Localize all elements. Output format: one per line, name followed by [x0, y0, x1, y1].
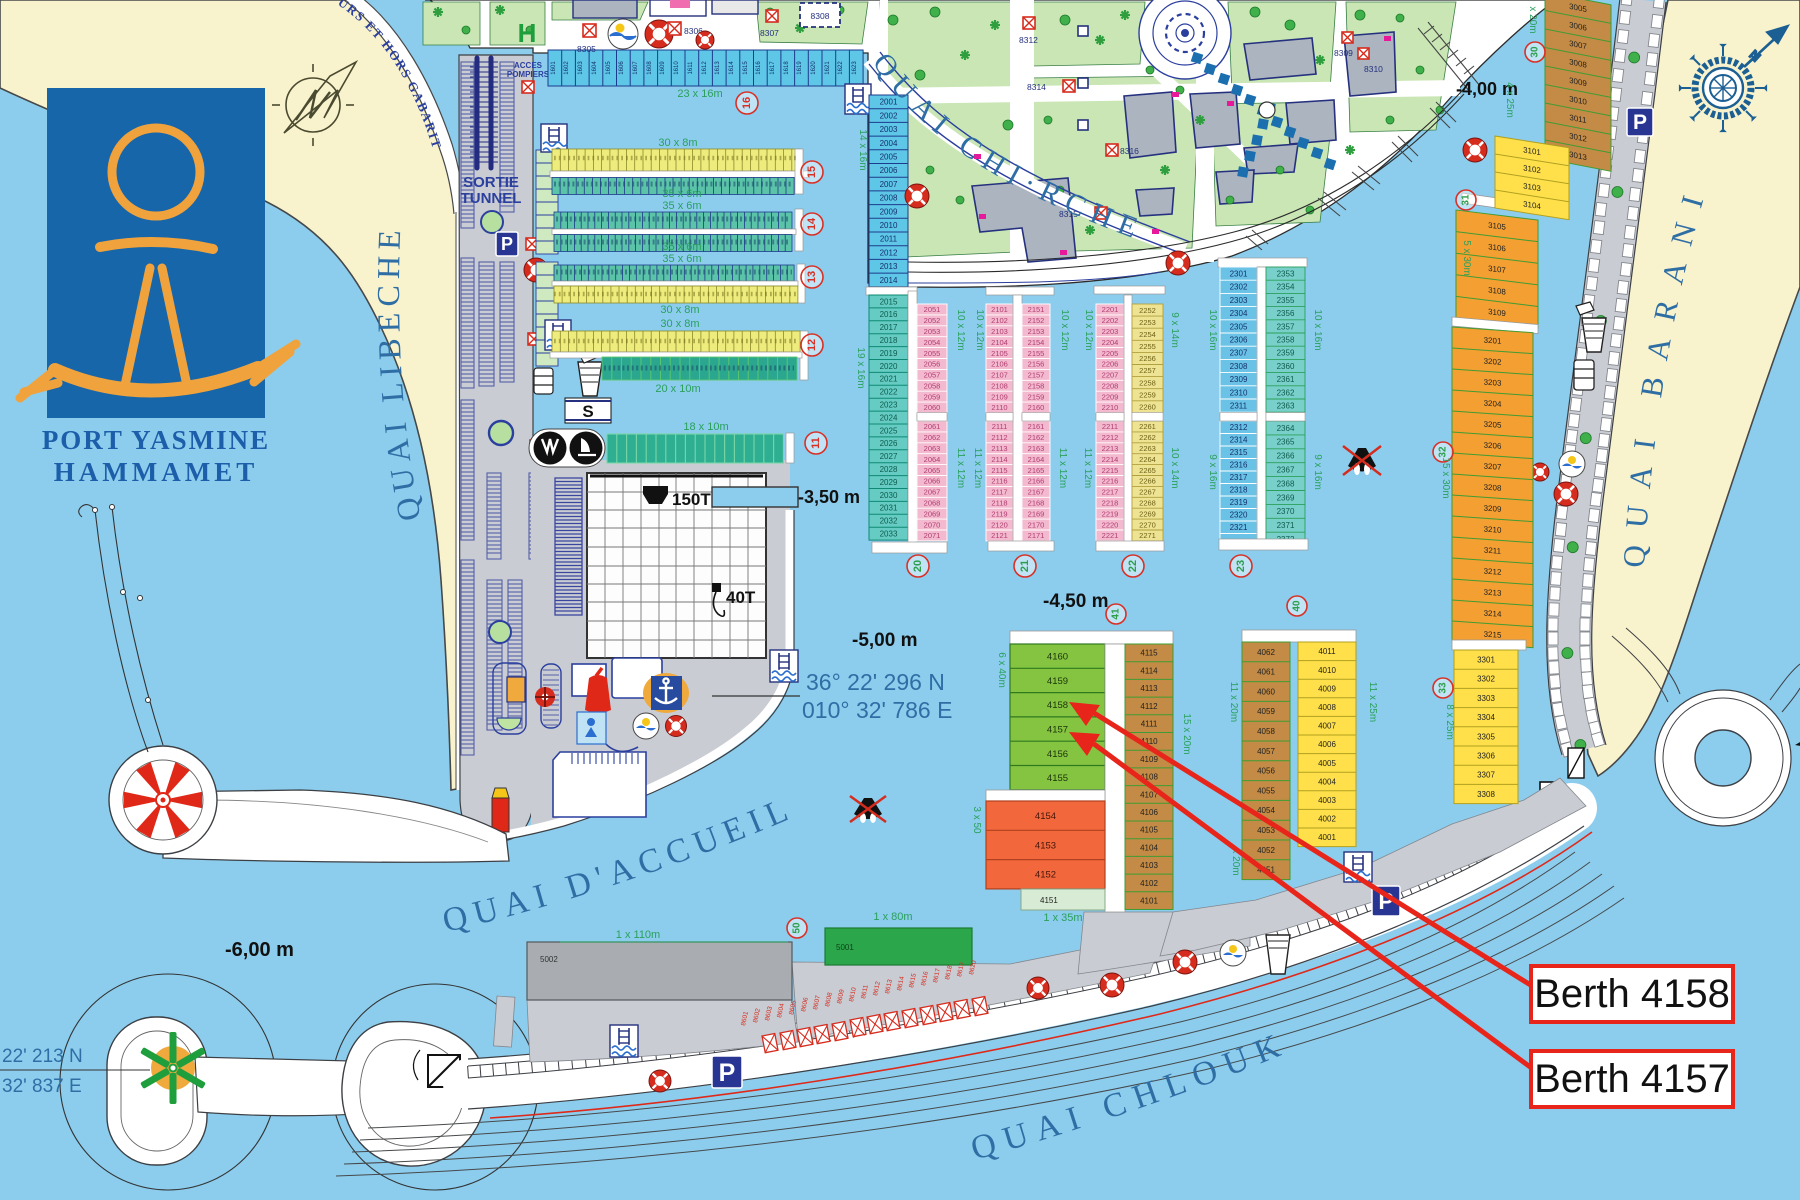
svg-text:2101: 2101: [991, 305, 1008, 314]
svg-text:2218: 2218: [1102, 498, 1119, 507]
svg-text:2312: 2312: [1230, 423, 1248, 432]
svg-text:4113: 4113: [1140, 684, 1158, 693]
svg-text:2370: 2370: [1277, 507, 1295, 516]
svg-text:1613: 1613: [715, 61, 721, 75]
svg-text:2163: 2163: [1028, 444, 1045, 453]
svg-text:4056: 4056: [1257, 767, 1275, 776]
svg-text:2016: 2016: [880, 310, 898, 319]
svg-text:2011: 2011: [880, 235, 898, 244]
svg-text:2159: 2159: [1028, 392, 1045, 401]
svg-text:10 x 12m: 10 x 12m: [1083, 309, 1094, 350]
svg-text:2362: 2362: [1277, 388, 1295, 397]
svg-text:4103: 4103: [1140, 861, 1158, 870]
svg-text:2057: 2057: [924, 371, 941, 380]
svg-text:010° 32' 786 E: 010° 32' 786 E: [802, 697, 952, 723]
svg-text:2158: 2158: [1028, 381, 1045, 390]
svg-text:2208: 2208: [1102, 381, 1119, 390]
svg-text:4157: 4157: [1047, 725, 1068, 736]
svg-text:16: 16: [741, 97, 753, 109]
svg-text:3306: 3306: [1477, 752, 1495, 761]
svg-text:2269: 2269: [1139, 509, 1156, 518]
svg-text:3303: 3303: [1477, 694, 1495, 703]
svg-text:8309: 8309: [1334, 48, 1353, 58]
svg-text:33: 33: [1438, 682, 1449, 694]
svg-text:14: 14: [806, 217, 818, 230]
svg-text:4059: 4059: [1257, 707, 1275, 716]
svg-text:3304: 3304: [1477, 713, 1495, 722]
svg-text:4007: 4007: [1318, 722, 1336, 731]
svg-text:2271: 2271: [1139, 531, 1156, 540]
svg-text:4158: 4158: [1047, 700, 1068, 711]
svg-text:4057: 4057: [1257, 747, 1275, 756]
svg-text:23: 23: [1235, 560, 1247, 572]
svg-text:2360: 2360: [1277, 362, 1295, 371]
svg-text:2015: 2015: [880, 297, 898, 306]
svg-text:2211: 2211: [1102, 422, 1118, 431]
svg-text:15 x 30m: 15 x 30m: [1440, 457, 1451, 498]
svg-text:2110: 2110: [991, 403, 1007, 412]
svg-text:2053: 2053: [924, 327, 941, 336]
svg-text:3210: 3210: [1484, 525, 1502, 535]
svg-text:3302: 3302: [1477, 675, 1495, 684]
svg-text:2307: 2307: [1230, 349, 1248, 358]
svg-text:5001: 5001: [836, 943, 854, 952]
svg-text:2355: 2355: [1277, 296, 1295, 305]
svg-text:2022: 2022: [880, 388, 898, 397]
svg-text:1614: 1614: [729, 61, 735, 75]
svg-text:2154: 2154: [1028, 338, 1045, 347]
svg-text:2007: 2007: [880, 180, 898, 189]
svg-text:150T: 150T: [672, 490, 711, 509]
svg-text:40: 40: [1292, 600, 1303, 612]
svg-text:2014: 2014: [880, 276, 898, 285]
svg-text:2104: 2104: [991, 338, 1008, 347]
svg-text:2061: 2061: [924, 422, 941, 431]
svg-text:3305: 3305: [1477, 732, 1495, 741]
svg-text:2165: 2165: [1028, 466, 1045, 475]
svg-text:1611: 1611: [688, 61, 694, 75]
svg-text:2261: 2261: [1139, 422, 1156, 431]
svg-text:3211: 3211: [1484, 546, 1502, 556]
svg-text:20: 20: [912, 560, 924, 572]
svg-text:2203: 2203: [1102, 327, 1119, 336]
svg-text:1616: 1616: [756, 61, 762, 75]
svg-text:6 x 40m: 6 x 40m: [996, 652, 1007, 688]
svg-text:4052: 4052: [1257, 846, 1275, 855]
svg-text:2262: 2262: [1139, 433, 1156, 442]
svg-text:2215: 2215: [1102, 466, 1119, 475]
svg-text:1604: 1604: [592, 61, 598, 75]
svg-text:35 x 6m: 35 x 6m: [662, 200, 701, 212]
svg-text:2157: 2157: [1028, 371, 1045, 380]
svg-text:1615: 1615: [743, 61, 749, 75]
svg-text:4055: 4055: [1257, 786, 1275, 795]
svg-text:35 x 6m: 35 x 6m: [662, 188, 701, 200]
svg-text:3209: 3209: [1484, 504, 1502, 514]
svg-text:2155: 2155: [1028, 349, 1045, 358]
svg-text:2169: 2169: [1028, 509, 1045, 518]
svg-text:3307: 3307: [1477, 771, 1495, 780]
svg-text:P: P: [1633, 111, 1647, 134]
svg-text:2216: 2216: [1102, 477, 1119, 486]
svg-text:4058: 4058: [1257, 727, 1275, 736]
svg-text:TUNNEL: TUNNEL: [461, 190, 522, 207]
svg-text:2270: 2270: [1139, 520, 1156, 529]
svg-text:2356: 2356: [1277, 309, 1295, 318]
svg-text:4156: 4156: [1047, 749, 1068, 760]
svg-text:2067: 2067: [924, 488, 941, 497]
svg-text:4159: 4159: [1047, 676, 1068, 687]
svg-text:2302: 2302: [1230, 283, 1248, 292]
svg-text:1609: 1609: [660, 61, 666, 75]
svg-text:2221: 2221: [1102, 531, 1119, 540]
svg-text:1622: 1622: [838, 61, 844, 75]
svg-text:2058: 2058: [924, 381, 941, 390]
svg-text:2357: 2357: [1277, 322, 1295, 331]
svg-text:2170: 2170: [1028, 520, 1045, 529]
svg-text:4061: 4061: [1257, 668, 1275, 677]
svg-text:23 x 16m: 23 x 16m: [677, 88, 722, 100]
svg-text:2168: 2168: [1028, 498, 1045, 507]
svg-text:P: P: [719, 1059, 736, 1087]
svg-text:15: 15: [806, 166, 818, 178]
svg-text:2032: 2032: [880, 517, 898, 526]
svg-text:8308: 8308: [811, 11, 830, 21]
svg-text:2255: 2255: [1139, 342, 1156, 351]
svg-text:2009: 2009: [880, 207, 898, 216]
svg-text:8305: 8305: [577, 44, 596, 54]
svg-text:2306: 2306: [1230, 336, 1248, 345]
svg-text:2156: 2156: [1028, 360, 1045, 369]
svg-text:2353: 2353: [1277, 270, 1295, 279]
svg-text:4104: 4104: [1140, 843, 1158, 852]
svg-text:2260: 2260: [1139, 403, 1156, 412]
svg-text:2103: 2103: [991, 327, 1008, 336]
svg-text:2162: 2162: [1028, 433, 1045, 442]
svg-text:2060: 2060: [924, 403, 941, 412]
svg-text:8312: 8312: [1019, 35, 1038, 45]
svg-text:4053: 4053: [1257, 826, 1275, 835]
svg-text:21: 21: [1019, 560, 1031, 572]
svg-text:8310: 8310: [1364, 64, 1383, 74]
svg-text:Berth 4158: Berth 4158: [1534, 972, 1730, 1016]
svg-text:SORTIE: SORTIE: [463, 174, 519, 191]
svg-text:2202: 2202: [1102, 316, 1119, 325]
svg-text:2315: 2315: [1230, 448, 1248, 457]
svg-text:4154: 4154: [1035, 811, 1056, 822]
svg-text:1 x 35m: 1 x 35m: [1043, 912, 1082, 924]
svg-text:2301: 2301: [1230, 270, 1248, 279]
svg-text:-5,00 m: -5,00 m: [852, 630, 917, 651]
svg-text:11 x 12m: 11 x 12m: [1082, 448, 1093, 488]
svg-text:2318: 2318: [1230, 486, 1248, 495]
svg-text:2029: 2029: [880, 478, 898, 487]
svg-text:2319: 2319: [1230, 498, 1248, 507]
svg-text:10 x 14m: 10 x 14m: [1169, 447, 1180, 488]
svg-text:2359: 2359: [1277, 349, 1295, 358]
svg-text:2021: 2021: [880, 375, 898, 384]
svg-text:2107: 2107: [991, 371, 1008, 380]
svg-text:2027: 2027: [880, 452, 898, 461]
svg-text:2369: 2369: [1277, 493, 1295, 502]
svg-text:14 x 16m: 14 x 16m: [857, 129, 868, 170]
svg-text:2205: 2205: [1102, 349, 1119, 358]
svg-text:2006: 2006: [880, 166, 898, 175]
svg-text:20 x 10m: 20 x 10m: [655, 383, 700, 395]
svg-text:2308: 2308: [1230, 362, 1248, 371]
svg-text:2111: 2111: [992, 422, 1008, 431]
svg-text:2054: 2054: [924, 338, 941, 347]
svg-text:4155: 4155: [1047, 773, 1068, 784]
svg-text:2317: 2317: [1230, 473, 1248, 482]
svg-text:2253: 2253: [1139, 318, 1156, 327]
svg-text:2069: 2069: [924, 509, 941, 518]
svg-text:4005: 4005: [1318, 759, 1336, 768]
svg-text:3308: 3308: [1477, 790, 1495, 799]
svg-text:8316: 8316: [1120, 146, 1139, 156]
svg-text:2113: 2113: [991, 444, 1007, 453]
svg-text:2055: 2055: [924, 349, 941, 358]
svg-text:2321: 2321: [1230, 523, 1248, 532]
svg-text:2264: 2264: [1139, 455, 1156, 464]
svg-text:1621: 1621: [825, 61, 831, 75]
svg-text:1610: 1610: [674, 61, 680, 75]
svg-text:4106: 4106: [1140, 808, 1158, 817]
svg-text:2263: 2263: [1139, 444, 1156, 453]
svg-text:2071: 2071: [924, 531, 941, 540]
svg-text:2160: 2160: [1028, 403, 1045, 412]
svg-text:50: 50: [792, 922, 803, 934]
svg-text:2153: 2153: [1028, 327, 1045, 336]
svg-text:2259: 2259: [1139, 390, 1156, 399]
svg-text:1612: 1612: [702, 61, 708, 75]
svg-text:4004: 4004: [1318, 777, 1336, 786]
svg-text:3207: 3207: [1484, 462, 1502, 472]
svg-text:10 x 16m: 10 x 16m: [1207, 309, 1218, 350]
svg-text:2310: 2310: [1230, 388, 1248, 397]
svg-text:1617: 1617: [770, 61, 776, 75]
svg-text:2314: 2314: [1230, 436, 1248, 445]
svg-text:2028: 2028: [880, 465, 898, 474]
svg-text:2210: 2210: [1102, 403, 1119, 412]
svg-text:1607: 1607: [633, 61, 639, 75]
svg-text:2316: 2316: [1230, 461, 1248, 470]
svg-text:8307: 8307: [760, 28, 779, 38]
svg-text:30: 30: [1530, 46, 1541, 58]
svg-text:2066: 2066: [924, 477, 941, 486]
svg-text:4111: 4111: [1141, 720, 1158, 729]
svg-text:4002: 4002: [1318, 815, 1336, 824]
svg-text:2003: 2003: [880, 125, 898, 134]
svg-text:41: 41: [1111, 608, 1122, 620]
svg-text:3204: 3204: [1484, 399, 1502, 409]
svg-text:2366: 2366: [1277, 452, 1295, 461]
svg-text:2258: 2258: [1139, 378, 1156, 387]
svg-text:4001: 4001: [1318, 833, 1336, 842]
svg-text:2062: 2062: [924, 433, 941, 442]
svg-text:10 x 16m: 10 x 16m: [1312, 309, 1323, 350]
svg-text:-3,50 m: -3,50 m: [798, 487, 860, 507]
svg-text:2106: 2106: [991, 360, 1008, 369]
svg-text:2267: 2267: [1139, 488, 1156, 497]
svg-text:5002: 5002: [540, 955, 558, 964]
svg-text:2164: 2164: [1028, 455, 1045, 464]
svg-text:2121: 2121: [991, 531, 1008, 540]
svg-text:8314: 8314: [1027, 82, 1046, 92]
svg-text:-6,00 m: -6,00 m: [225, 939, 294, 961]
svg-text:H: H: [518, 18, 537, 48]
svg-text:ACCES: ACCES: [514, 61, 543, 70]
svg-text:19 x 16m: 19 x 16m: [855, 347, 866, 388]
svg-text:2201: 2201: [1102, 305, 1119, 314]
svg-text:4105: 4105: [1140, 826, 1158, 835]
svg-text:POMPIERS: POMPIERS: [507, 70, 550, 79]
svg-text:4151: 4151: [1040, 896, 1058, 905]
svg-text:1619: 1619: [797, 61, 803, 75]
svg-text:2371: 2371: [1277, 521, 1295, 530]
svg-text:36° 22' 296 N: 36° 22' 296 N: [806, 669, 945, 695]
svg-text:2254: 2254: [1139, 330, 1156, 339]
svg-text:2320: 2320: [1230, 511, 1248, 520]
svg-text:31: 31: [1461, 194, 1472, 206]
svg-text:2025: 2025: [880, 426, 898, 435]
svg-text:3213: 3213: [1484, 588, 1502, 598]
svg-text:2204: 2204: [1102, 338, 1119, 347]
svg-text:1608: 1608: [647, 61, 653, 75]
svg-text:4008: 4008: [1318, 703, 1336, 712]
svg-text:2115: 2115: [991, 466, 1007, 475]
svg-text:40T: 40T: [726, 588, 756, 607]
svg-text:4153: 4153: [1035, 840, 1056, 851]
svg-text:11 x 25m: 11 x 25m: [1367, 682, 1378, 722]
svg-text:3212: 3212: [1484, 567, 1502, 577]
svg-text:11 x 12m: 11 x 12m: [972, 448, 983, 488]
svg-text:2017: 2017: [880, 323, 898, 332]
svg-text:11 x 12m: 11 x 12m: [1057, 448, 1068, 488]
svg-text:2114: 2114: [991, 455, 1007, 464]
svg-text:2018: 2018: [880, 336, 898, 345]
svg-text:2012: 2012: [880, 248, 898, 257]
svg-text:13: 13: [806, 271, 818, 283]
svg-text:2023: 2023: [880, 401, 898, 410]
svg-text:2212: 2212: [1102, 433, 1119, 442]
svg-text:2206: 2206: [1102, 360, 1119, 369]
svg-text:2220: 2220: [1102, 520, 1119, 529]
svg-text:2108: 2108: [991, 381, 1008, 390]
svg-text:5 x 30m: 5 x 30m: [1461, 240, 1472, 276]
svg-text:2161: 2161: [1028, 422, 1045, 431]
svg-text:4115: 4115: [1140, 649, 1158, 658]
svg-text:2367: 2367: [1277, 466, 1295, 475]
svg-text:2311: 2311: [1230, 402, 1248, 411]
svg-text:x 20m: x 20m: [1527, 6, 1538, 33]
svg-text:2119: 2119: [991, 509, 1007, 518]
svg-text:1620: 1620: [811, 61, 817, 75]
svg-text:1603: 1603: [578, 61, 584, 75]
svg-text:2257: 2257: [1139, 366, 1156, 375]
svg-text:2004: 2004: [880, 139, 898, 148]
svg-text:1 x 80m: 1 x 80m: [873, 911, 912, 923]
svg-text:3 x 50: 3 x 50: [971, 806, 982, 834]
svg-text:2265: 2265: [1139, 466, 1156, 475]
svg-text:4102: 4102: [1140, 879, 1158, 888]
svg-text:30 x 8m: 30 x 8m: [658, 137, 697, 149]
svg-text:10 x 12m: 10 x 12m: [974, 309, 985, 350]
svg-text:3202: 3202: [1484, 357, 1502, 367]
svg-text:2209: 2209: [1102, 392, 1119, 401]
svg-text:2303: 2303: [1230, 296, 1248, 305]
svg-text:2217: 2217: [1102, 488, 1119, 497]
svg-text:3203: 3203: [1484, 378, 1502, 388]
svg-text:2030: 2030: [880, 491, 898, 500]
svg-text:3214: 3214: [1484, 609, 1502, 619]
svg-text:2008: 2008: [880, 194, 898, 203]
svg-text:S: S: [582, 402, 593, 421]
svg-text:1606: 1606: [619, 61, 625, 75]
svg-text:2252: 2252: [1139, 306, 1156, 315]
svg-text:22' 213 N: 22' 213 N: [2, 1046, 83, 1067]
svg-text:2059: 2059: [924, 392, 941, 401]
svg-text:HAMMAMET: HAMMAMET: [54, 457, 258, 487]
svg-text:4101: 4101: [1140, 897, 1158, 906]
svg-text:3201: 3201: [1484, 336, 1502, 346]
svg-text:4109: 4109: [1140, 755, 1158, 764]
svg-text:Berth 4157: Berth 4157: [1534, 1057, 1730, 1101]
svg-text:2151: 2151: [1028, 305, 1045, 314]
svg-text:4160: 4160: [1047, 652, 1068, 663]
svg-text:9 x 16m: 9 x 16m: [1207, 454, 1218, 490]
svg-text:2166: 2166: [1028, 477, 1045, 486]
svg-text:2207: 2207: [1102, 371, 1119, 380]
svg-text:1618: 1618: [784, 61, 790, 75]
svg-text:22: 22: [1127, 560, 1139, 572]
svg-text:2219: 2219: [1102, 509, 1119, 518]
svg-text:PORT YASMINE: PORT YASMINE: [42, 425, 270, 455]
svg-text:2117: 2117: [991, 488, 1007, 497]
svg-text:2120: 2120: [991, 520, 1008, 529]
svg-text:2358: 2358: [1277, 336, 1295, 345]
svg-text:2068: 2068: [924, 498, 941, 507]
svg-text:2051: 2051: [924, 305, 941, 314]
svg-text:2070: 2070: [924, 520, 941, 529]
svg-text:10 x 12m: 10 x 12m: [1059, 309, 1070, 350]
svg-text:3208: 3208: [1484, 483, 1502, 493]
svg-text:2171: 2171: [1028, 531, 1045, 540]
svg-text:9 x 14m: 9 x 14m: [1169, 312, 1180, 348]
svg-text:4003: 4003: [1318, 796, 1336, 805]
svg-text:3215: 3215: [1484, 630, 1502, 640]
svg-text:4152: 4152: [1035, 870, 1056, 881]
svg-text:2167: 2167: [1028, 488, 1045, 497]
svg-text:2020: 2020: [880, 362, 898, 371]
svg-text:1605: 1605: [606, 61, 612, 75]
svg-text:1602: 1602: [564, 61, 570, 75]
svg-text:-4,50 m: -4,50 m: [1043, 591, 1108, 612]
svg-text:3206: 3206: [1484, 441, 1502, 451]
svg-text:2056: 2056: [924, 360, 941, 369]
svg-text:4112: 4112: [1140, 702, 1158, 711]
svg-text:2363: 2363: [1277, 402, 1295, 411]
svg-text:32: 32: [1438, 446, 1449, 458]
svg-text:2256: 2256: [1139, 354, 1156, 363]
svg-text:4009: 4009: [1318, 684, 1336, 693]
svg-text:2116: 2116: [991, 477, 1007, 486]
svg-text:4011: 4011: [1318, 647, 1336, 656]
svg-text:10 x 12m: 10 x 12m: [955, 309, 966, 350]
svg-text:2365: 2365: [1277, 438, 1295, 447]
svg-text:1601: 1601: [551, 61, 557, 75]
svg-text:2152: 2152: [1028, 316, 1045, 325]
